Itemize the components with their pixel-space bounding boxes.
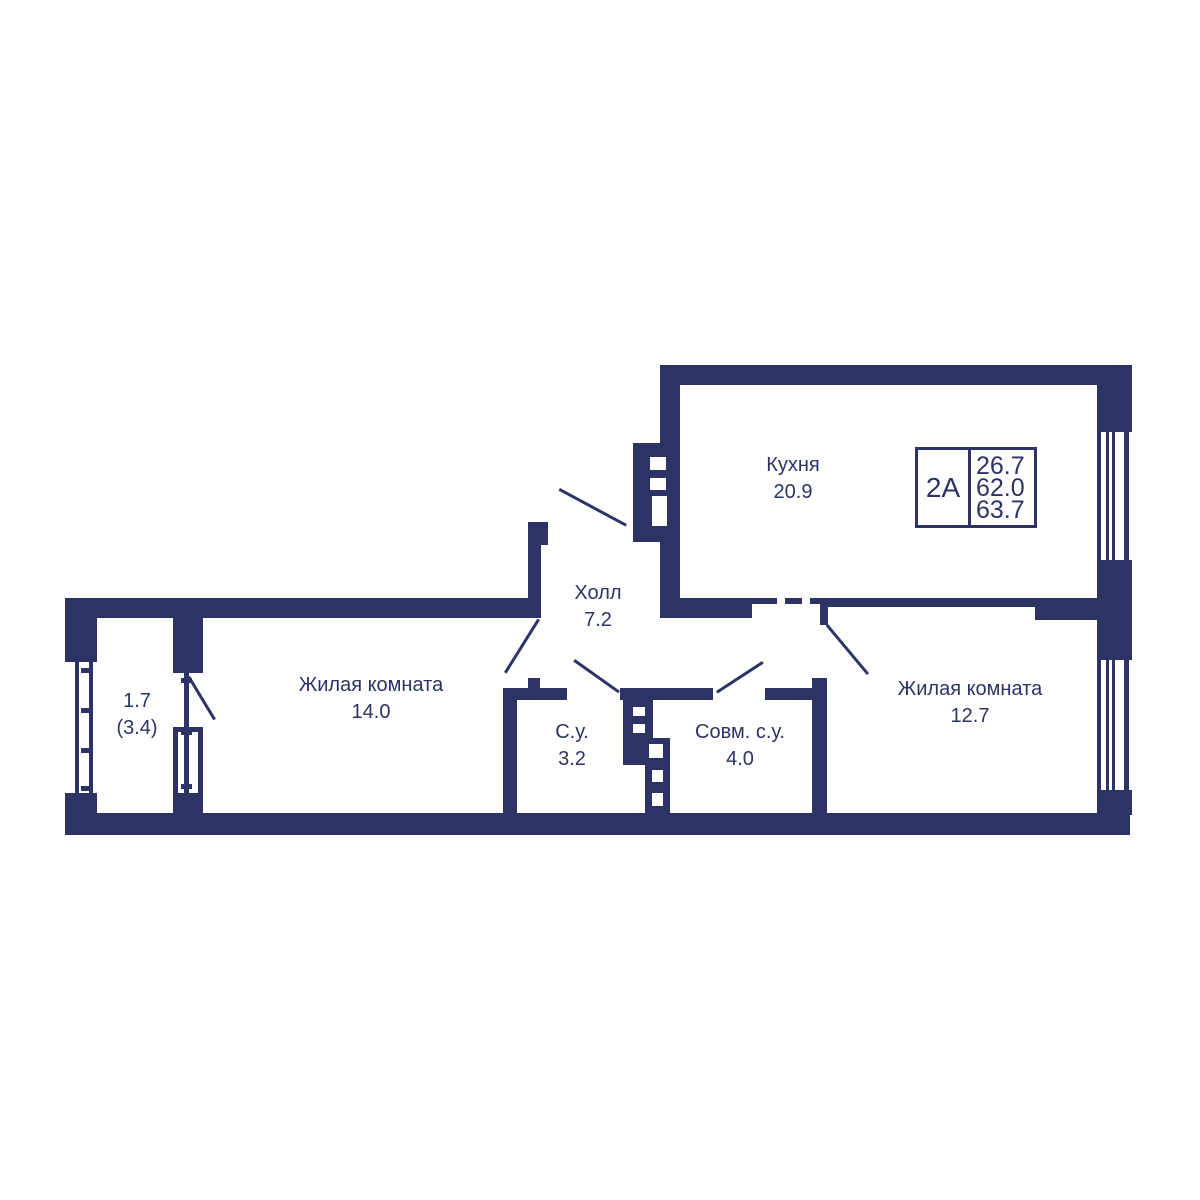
lr12-window-line	[1097, 660, 1101, 790]
room-label-bath: Совм. с.у. 4.0	[660, 719, 820, 773]
room-name: Холл	[518, 580, 678, 607]
balcony-door-swing	[187, 676, 215, 720]
room-label-living-12: Жилая комната 12.7	[850, 676, 1090, 730]
wall-balcony-partition	[173, 618, 203, 673]
room-name: Жилая комната	[850, 676, 1090, 703]
wall-bottom	[65, 813, 1130, 835]
lr12-window-line	[1112, 660, 1115, 790]
room-label-hall: Холл 7.2	[518, 580, 678, 634]
wall-right-mid-block	[1097, 560, 1132, 660]
room-area-secondary: (3.4)	[87, 715, 187, 742]
apartment-areas: 26.7 62.0 63.7	[971, 450, 1034, 525]
lr12-window-line	[1106, 660, 1109, 790]
room-name: С.у.	[512, 719, 632, 746]
wall-right-top-block	[1097, 365, 1132, 432]
room-label-balcony: 1.7 (3.4)	[87, 688, 187, 742]
entrance-door-swing	[559, 488, 627, 527]
wall-lr12-top-thick	[1035, 598, 1097, 620]
apartment-type: 2А	[918, 450, 971, 525]
dashed-opening-segment	[785, 598, 802, 604]
wall-su-top-tab	[528, 678, 540, 688]
room-name: Кухня	[713, 452, 873, 479]
room-name: Жилая комната	[251, 672, 491, 699]
wall-right-bottom-block	[1097, 790, 1132, 815]
wall-lr12-top-thin	[828, 598, 1035, 607]
room-area: 4.0	[660, 746, 820, 773]
vent-hole	[633, 724, 645, 733]
room-name: Совм. с.у.	[660, 719, 820, 746]
wall-su-top	[503, 688, 567, 700]
lr12-window-line	[1124, 660, 1129, 790]
vent-hole	[650, 478, 666, 490]
lr12-door-swing	[826, 624, 869, 675]
kitchen-window-line	[1112, 432, 1115, 560]
area-total: 63.7	[976, 499, 1034, 521]
wall-balcony-pillar-bottom	[173, 793, 203, 815]
balcony-window-tick	[81, 748, 89, 753]
room-label-living-14: Жилая комната 14.0	[251, 672, 491, 726]
vent-hole	[650, 457, 666, 470]
bath-door-swing	[716, 661, 764, 694]
balcony-window-tick	[81, 668, 89, 673]
kitchen-window-line	[1097, 432, 1101, 560]
room-label-su: С.у. 3.2	[512, 719, 632, 773]
balcony-window-outer-line	[75, 662, 79, 793]
kitchen-window-line	[1106, 432, 1109, 560]
room-area: 7.2	[518, 607, 678, 634]
room-area: 1.7	[87, 688, 187, 715]
room-area: 14.0	[251, 699, 491, 726]
room-area: 3.2	[512, 746, 632, 773]
wall-bath-top-right	[765, 688, 827, 700]
balcony-window-sill-right	[198, 727, 203, 793]
apartment-info-box: 2А 26.7 62.0 63.7	[915, 447, 1037, 528]
wall-top-left-band	[65, 598, 541, 618]
vent-hole	[633, 707, 645, 716]
room-area: 20.9	[713, 479, 873, 506]
dashed-opening-segment	[810, 598, 822, 604]
room-area: 12.7	[850, 703, 1090, 730]
su-door-swing	[573, 659, 620, 693]
kitchen-window-line	[1124, 432, 1129, 560]
wall-kitchen-top	[660, 365, 1125, 385]
room-label-kitchen: Кухня 20.9	[713, 452, 873, 506]
balcony-window-tick	[81, 786, 89, 791]
vent-hole	[652, 793, 663, 806]
balcony-door-tick	[181, 784, 192, 789]
dashed-opening-segment	[752, 598, 777, 604]
vent-hole	[652, 496, 667, 526]
wall-left-pillar-top	[65, 598, 97, 662]
floor-plan: Кухня 20.9 Холл 7.2 Жилая комната 14.0 Ж…	[0, 0, 1200, 1200]
